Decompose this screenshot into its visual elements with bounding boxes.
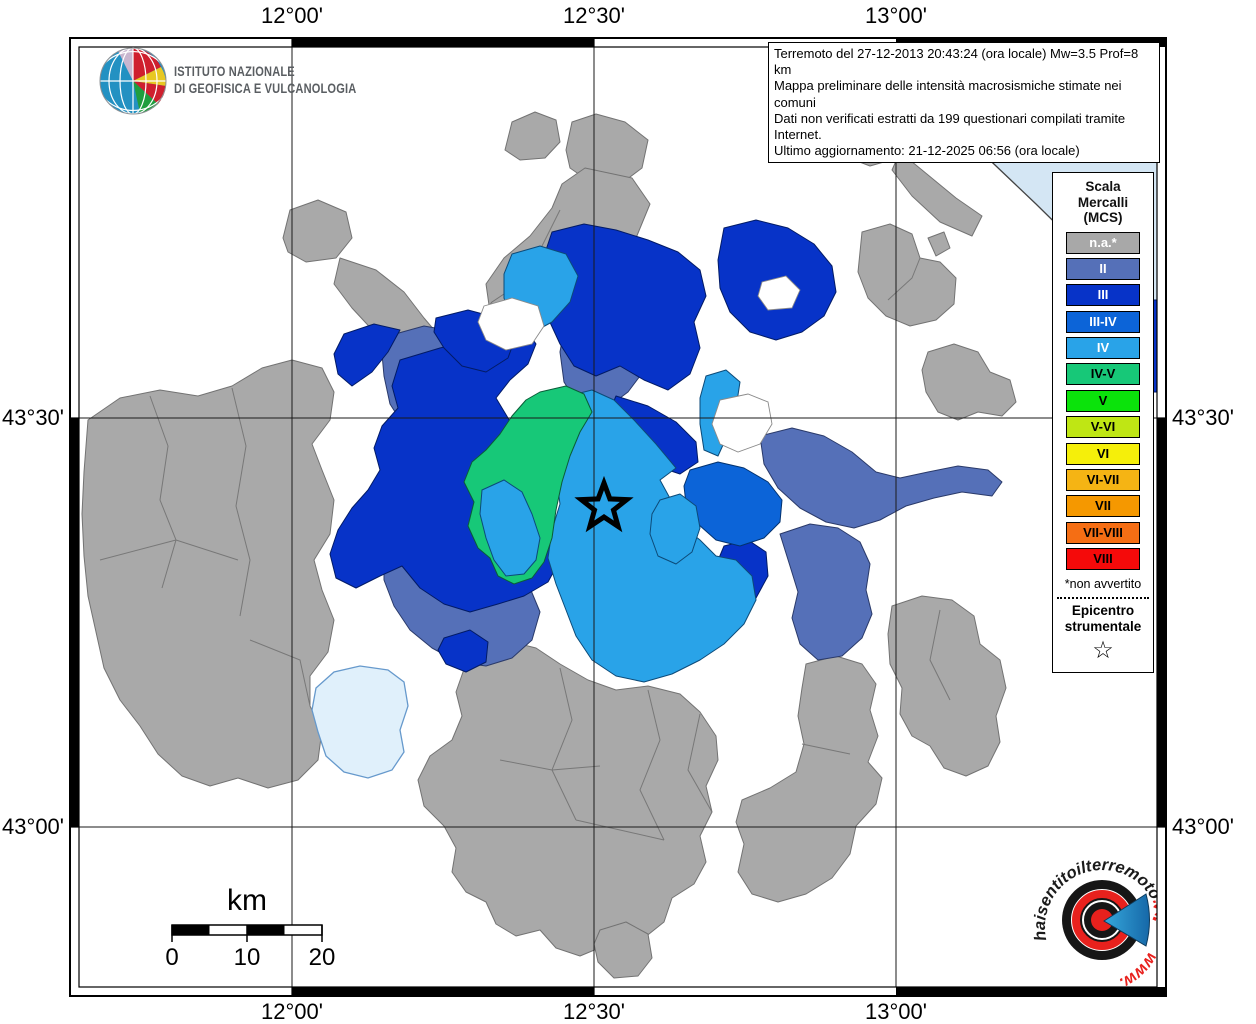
legend-title: Scala Mercalli (MCS) bbox=[1053, 179, 1153, 226]
scale-tick-20: 20 bbox=[292, 944, 352, 972]
epicenter-star-icon: ☆ bbox=[1053, 638, 1153, 664]
legend-swatch-vvi: V-VI bbox=[1066, 416, 1140, 438]
haisentito-logo: haisentitoilterremoto.it www. ? bbox=[1031, 856, 1172, 993]
lat-label-right-4330: 43°30' bbox=[1172, 406, 1242, 430]
lon-label-top-1300: 13°00' bbox=[841, 4, 951, 28]
scale-tick-10: 10 bbox=[217, 944, 277, 972]
legend-swatch-iv: IV bbox=[1066, 337, 1140, 359]
scale-bar-unit: km bbox=[207, 884, 287, 918]
lat-label-left-4330: 43°30' bbox=[2, 406, 64, 430]
legend-swatch-viii: VIII bbox=[1066, 548, 1140, 570]
legend-swatch-iii: III bbox=[1066, 284, 1140, 306]
page: { "header": { "lon_labels": ["12\u00b000… bbox=[0, 0, 1256, 1024]
legend-divider bbox=[1057, 597, 1149, 599]
legend-swatch-vii: VII bbox=[1066, 495, 1140, 517]
lat-label-left-4300: 43°00' bbox=[2, 815, 64, 839]
legend-footnote: *non avvertito bbox=[1053, 577, 1153, 591]
legend-swatch-na: n.a.* bbox=[1066, 232, 1140, 254]
lat-label-right-4300: 43°00' bbox=[1172, 815, 1242, 839]
intensity-legend: Scala Mercalli (MCS) n.a.*IIIIIIII-IVIVI… bbox=[1052, 172, 1154, 673]
ingv-name-line1: ISTITUTO NAZIONALE bbox=[174, 63, 356, 80]
info-line-update: Ultimo aggiornamento: 21-12-2025 06:56 (… bbox=[774, 143, 1154, 159]
scale-bar bbox=[172, 925, 322, 942]
ingv-name-line2: DI GEOFISICA E VULCANOLOGIA bbox=[174, 80, 356, 97]
ingv-globe-icon bbox=[100, 48, 166, 114]
lake bbox=[312, 666, 408, 778]
info-line-map: Mappa preliminare delle intensità macros… bbox=[774, 78, 1154, 110]
info-line-data: Dati non verificati estratti da 199 ques… bbox=[774, 111, 1154, 143]
legend-swatch-viiviii: VII-VIII bbox=[1066, 522, 1140, 544]
lon-label-bottom-1300: 13°00' bbox=[841, 1000, 951, 1024]
legend-swatch-vi: VI bbox=[1066, 443, 1140, 465]
info-line-event: Terremoto del 27-12-2013 20:43:24 (ora l… bbox=[774, 46, 1154, 78]
legend-swatch-v: V bbox=[1066, 390, 1140, 412]
lon-label-top-1200: 12°00' bbox=[237, 4, 347, 28]
scale-tick-0: 0 bbox=[142, 944, 202, 972]
ingv-wordmark: ISTITUTO NAZIONALE DI GEOFISICA E VULCAN… bbox=[174, 63, 356, 97]
lon-label-bottom-1230: 12°30' bbox=[539, 1000, 649, 1024]
lon-label-top-1230: 12°30' bbox=[539, 4, 649, 28]
lon-label-bottom-1200: 12°00' bbox=[237, 1000, 347, 1024]
legend-epicenter-label: Epicentro strumentale bbox=[1053, 603, 1153, 635]
earthquake-info-box: Terremoto del 27-12-2013 20:43:24 (ora l… bbox=[768, 42, 1160, 163]
legend-swatch-ii: II bbox=[1066, 258, 1140, 280]
legend-swatch-ivv: IV-V bbox=[1066, 363, 1140, 385]
brand-www-text: www. bbox=[1117, 950, 1161, 993]
legend-items: n.a.*IIIIIIII-IVIVIV-VVV-VIVIVI-VIIVIIVI… bbox=[1053, 232, 1153, 571]
legend-swatch-vivii: VI-VII bbox=[1066, 469, 1140, 491]
legend-swatch-iiiiv: III-IV bbox=[1066, 311, 1140, 333]
